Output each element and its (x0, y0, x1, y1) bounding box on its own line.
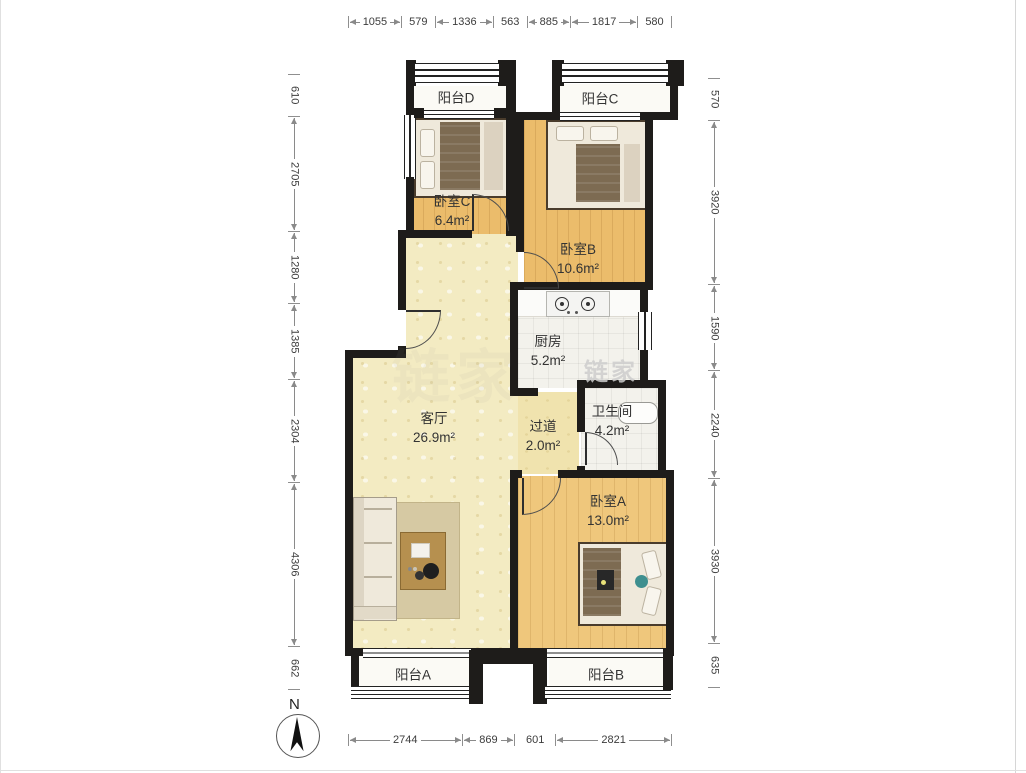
wall-segment (516, 118, 524, 252)
room-label-balcony-c: 阳台C (582, 91, 619, 110)
wall-segment (663, 656, 673, 690)
room-label-hallway: 过道2.0m² (526, 418, 561, 456)
room-label-bathroom: 卫生间4.2m² (592, 403, 633, 441)
room-label-balcony-a: 阳台A (395, 667, 431, 686)
wall-segment (640, 290, 648, 312)
wall-segment (658, 388, 666, 478)
window (547, 648, 663, 658)
window (351, 686, 479, 699)
wall-segment (510, 478, 518, 650)
wall-segment (510, 470, 522, 478)
wall-segment (640, 350, 648, 384)
room-label-bedroom-c: 卧室C6.4m² (434, 193, 471, 231)
wall-segment (345, 350, 353, 656)
wall-segment (645, 118, 653, 290)
window (404, 115, 416, 179)
stove (546, 291, 610, 317)
room-label-balcony-d: 阳台D (438, 90, 475, 109)
wall-segment (469, 664, 483, 704)
window (562, 63, 668, 83)
wall-segment (494, 108, 506, 118)
wall-segment (506, 60, 516, 236)
window (545, 686, 671, 699)
floorplan-image[interactable]: 阳台D 阳台C 卧室C6.4m² 卧室B10.6m² 厨房5.2m² 过道2.0… (0, 0, 1026, 773)
room-label-bedroom-b: 卧室B10.6m² (557, 241, 599, 279)
compass-north-label: N (289, 696, 300, 713)
room-label-balcony-b: 阳台B (588, 667, 624, 686)
sofa (353, 497, 397, 621)
room-label-kitchen: 厨房5.2m² (531, 333, 566, 371)
window (638, 312, 652, 350)
wall-segment (666, 478, 674, 650)
coffee-table (400, 532, 446, 590)
watermark: 链家 (392, 330, 520, 414)
bed (414, 118, 511, 198)
wall-segment (398, 230, 472, 238)
window (363, 648, 471, 658)
watermark: 链家 (584, 352, 638, 387)
wall-segment (345, 648, 363, 656)
room-label-living-room: 客厅26.9m² (413, 410, 455, 448)
floorplan-page: 105557913365638851817580 27448696012821 … (0, 0, 1026, 773)
wall-segment (351, 656, 359, 690)
wall-segment (577, 388, 585, 432)
room-label-bedroom-a: 卧室A13.0m² (587, 493, 629, 531)
wall-segment (666, 60, 684, 86)
window (415, 63, 499, 83)
bed (578, 542, 670, 626)
window (424, 110, 494, 119)
wall-segment (406, 177, 414, 238)
bed (546, 120, 648, 210)
wall-segment (398, 230, 406, 310)
wall-segment (414, 108, 424, 118)
wall-segment (406, 84, 414, 117)
wall-segment (558, 470, 674, 478)
wall-segment (510, 648, 547, 656)
window (560, 112, 640, 121)
